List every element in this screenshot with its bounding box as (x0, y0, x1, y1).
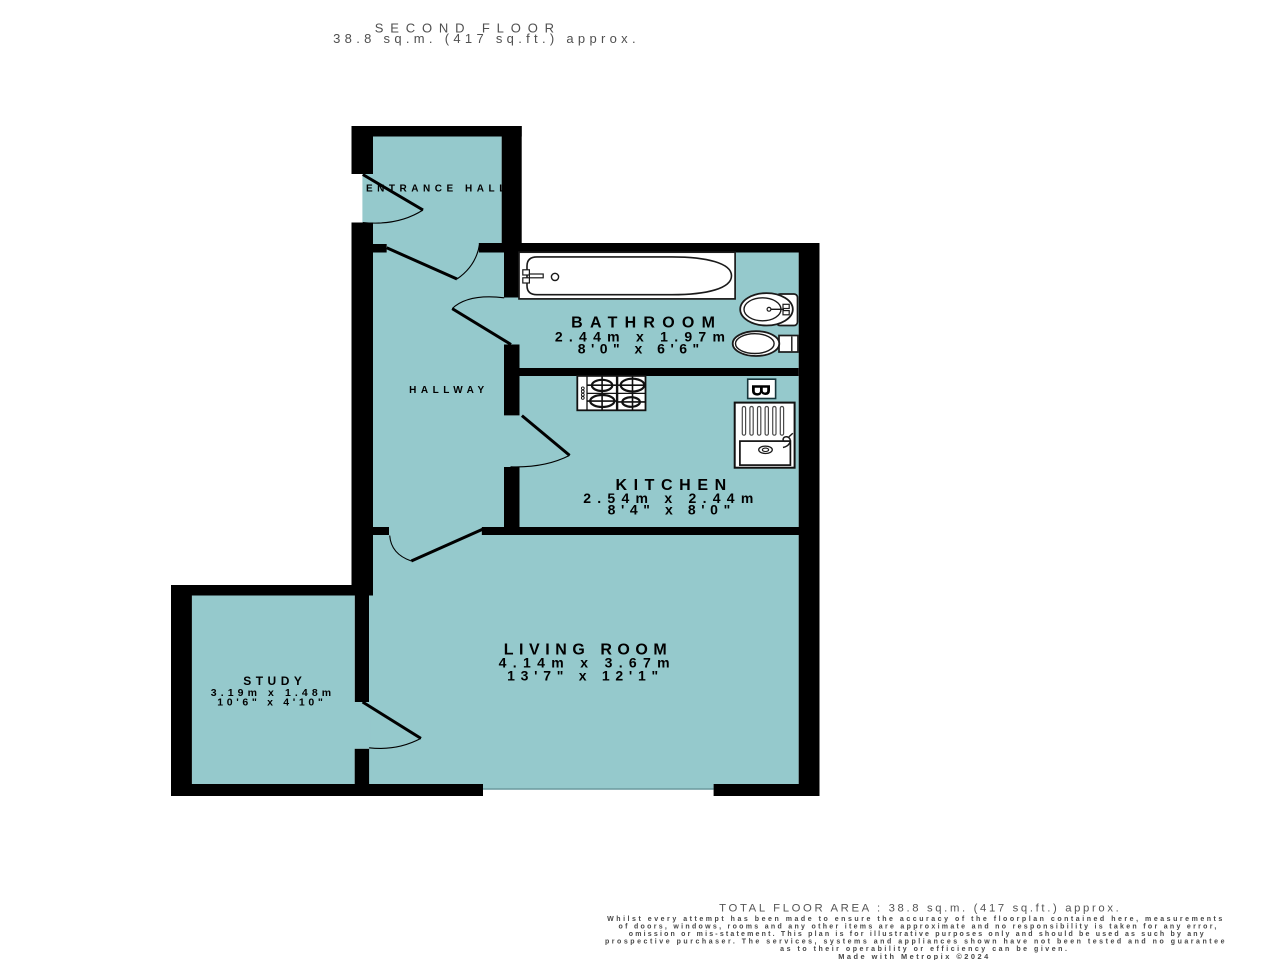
svg-text:10'6" x 4'10": 10'6" x 4'10" (217, 696, 326, 708)
svg-text:B: B (746, 384, 776, 396)
svg-text:of doors, windows, rooms and a: of doors, windows, rooms and any other i… (619, 924, 1219, 931)
svg-text:8'4" x 8'0": 8'4" x 8'0" (608, 502, 736, 518)
svg-text:38.8 sq.m. (417 sq.ft.) approx: 38.8 sq.m. (417 sq.ft.) approx. (333, 31, 640, 46)
svg-text:STUDY: STUDY (243, 674, 306, 688)
svg-text:TOTAL FLOOR AREA : 38.8 sq.m.: TOTAL FLOOR AREA : 38.8 sq.m. (417 sq.ft… (719, 902, 1121, 914)
svg-text:8'0" x 6'6": 8'0" x 6'6" (578, 340, 705, 356)
svg-text:HALLWAY: HALLWAY (409, 385, 488, 396)
svg-text:Whilst every attempt has been: Whilst every attempt has been made to en… (607, 916, 1225, 923)
svg-text:Made with Metropix ©2024: Made with Metropix ©2024 (838, 952, 991, 960)
svg-text:13'7" x 12'1": 13'7" x 12'1" (507, 668, 664, 684)
svg-text:prospective purchaser. The ser: prospective purchaser. The services, sys… (605, 939, 1227, 946)
svg-text:omission or mis-statement. Thi: omission or mis-statement. This plan is … (629, 931, 1206, 938)
